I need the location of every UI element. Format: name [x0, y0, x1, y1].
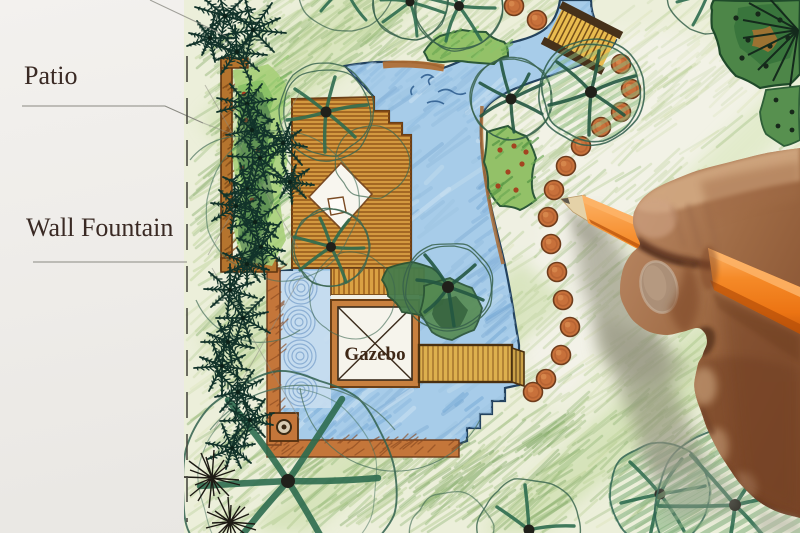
svg-text:Patio: Patio: [24, 61, 77, 90]
svg-text:Gazebo: Gazebo: [344, 344, 405, 365]
svg-text:Wall Fountain: Wall Fountain: [26, 213, 173, 242]
